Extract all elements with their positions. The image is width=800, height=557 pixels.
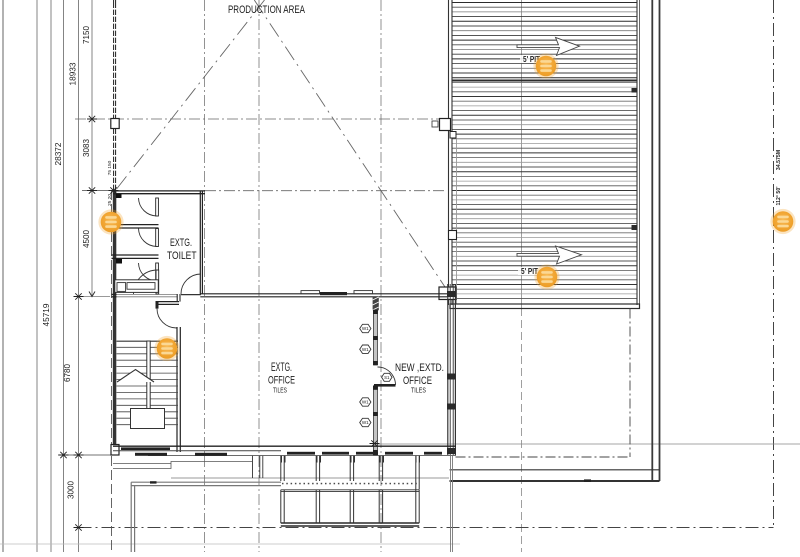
svg-text:TILES: TILES xyxy=(411,386,426,395)
svg-text:W1: W1 xyxy=(362,326,369,331)
svg-text:45719: 45719 xyxy=(42,303,51,327)
svg-text:3000: 3000 xyxy=(67,480,76,499)
svg-text:112° 50': 112° 50' xyxy=(776,187,782,206)
svg-text:W1: W1 xyxy=(362,420,369,425)
svg-text:25 20: 25 20 xyxy=(107,194,113,206)
svg-text:75 150: 75 150 xyxy=(107,160,113,175)
svg-text:EXTG.: EXTG. xyxy=(271,362,292,374)
svg-text:18933: 18933 xyxy=(69,62,78,86)
svg-text:7150: 7150 xyxy=(82,25,91,44)
svg-text:3083: 3083 xyxy=(82,138,91,157)
svg-text:S1: S1 xyxy=(384,375,390,380)
svg-text:NEW ,EXTD.: NEW ,EXTD. xyxy=(395,362,444,374)
svg-text:W1: W1 xyxy=(362,347,369,352)
svg-text:TILES: TILES xyxy=(273,386,287,395)
svg-text:W1: W1 xyxy=(362,400,369,405)
svg-text:6780: 6780 xyxy=(63,363,72,382)
svg-text:PRODUCTION AREA: PRODUCTION AREA xyxy=(228,4,305,16)
svg-text:EXTG.: EXTG. xyxy=(170,237,192,249)
svg-text:34.575M: 34.575M xyxy=(776,150,782,170)
svg-text:4500: 4500 xyxy=(82,229,91,248)
svg-text:28372: 28372 xyxy=(54,142,63,166)
svg-text:TOILET: TOILET xyxy=(167,250,197,262)
